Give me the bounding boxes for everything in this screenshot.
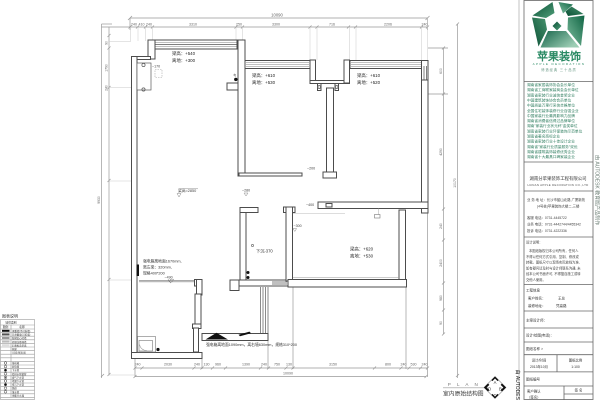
svg-text:不得以任何方式引用、复制、修改或: 不得以任何方式引用、复制、修改或 xyxy=(526,254,579,259)
svg-text:离左梁：320mm,: 离左梁：320mm, xyxy=(143,265,172,270)
svg-text:B: B xyxy=(499,386,502,391)
svg-text:落水管: 落水管 xyxy=(12,390,20,394)
svg-text:2030: 2030 xyxy=(164,363,172,367)
svg-text:湖南分苹果装饰工程有限公司: 湖南分苹果装饰工程有限公司 xyxy=(529,175,586,182)
svg-text:90: 90 xyxy=(439,321,443,325)
svg-text:中国家装行业最具影响力品牌: 中国家装行业最具影响力品牌 xyxy=(527,113,575,118)
svg-text:D: D xyxy=(488,386,491,391)
svg-text:设计/时间: 设计/时间 xyxy=(532,358,547,363)
svg-text:工程信息: 工程信息 xyxy=(526,288,540,293)
svg-text:10090: 10090 xyxy=(271,13,283,18)
svg-text:~490: ~490 xyxy=(165,276,173,280)
svg-text:梁高：+610: 梁高：+610 xyxy=(252,72,276,79)
svg-text:下水管: 下水管 xyxy=(12,368,20,372)
svg-text:设计/绘图(电话)：: 设计/绘图(电话)： xyxy=(526,333,554,338)
svg-text:凭高路: 凭高路 xyxy=(556,303,567,308)
svg-text:由 AUTODESK 教育版产品制作: 由 AUTODESK 教育版产品制作 xyxy=(594,155,600,225)
svg-text:530: 530 xyxy=(411,363,417,367)
svg-text:960: 960 xyxy=(215,363,221,367)
svg-text:离地：+530: 离地：+530 xyxy=(350,253,374,260)
svg-text:130: 130 xyxy=(286,363,292,367)
svg-text:410: 410 xyxy=(139,23,145,27)
svg-text:240: 240 xyxy=(131,23,137,27)
svg-text:湖南"家装行业状元杯"金奖单位: 湖南"家装行业状元杯"金奖单位 xyxy=(527,123,578,128)
svg-text:给排水预留管: 给排水预留管 xyxy=(12,372,27,376)
svg-text:2400: 2400 xyxy=(439,259,443,267)
svg-text:苹果装饰: 苹果装饰 xyxy=(537,49,581,63)
svg-text:梁高：+540: 梁高：+540 xyxy=(172,50,196,57)
svg-text:图纸名称 >: 图纸名称 > xyxy=(526,346,543,351)
svg-text:室内原始结构图: 室内原始结构图 xyxy=(443,390,484,398)
svg-text:HUNAN APPLE DECORATION CO.,LTD: HUNAN APPLE DECORATION CO.,LTD xyxy=(527,183,588,187)
svg-text:客户姓名：: 客户姓名： xyxy=(528,296,546,301)
svg-text:240: 240 xyxy=(401,363,407,367)
svg-text:强电箱离地面1670mm,: 强电箱离地面1670mm, xyxy=(143,259,182,264)
svg-text:装修地址：: 装修地址： xyxy=(528,303,546,308)
svg-text:湖南省工商联家装商会会长单位: 湖南省工商联家装商会会长单位 xyxy=(527,87,579,92)
svg-text:980: 980 xyxy=(439,295,443,301)
svg-text:~280: ~280 xyxy=(242,189,250,193)
svg-text:由 AUTODESK 教育版产品制作: 由 AUTODESK 教育版产品制作 xyxy=(514,370,521,400)
svg-text:离地：+300: 离地：+300 xyxy=(172,57,196,64)
svg-text:240: 240 xyxy=(261,363,267,367)
svg-text:弱电箱: 弱电箱 xyxy=(12,365,20,369)
svg-text:130: 130 xyxy=(204,363,210,367)
svg-text:中国建筑装饰协会会员单位: 中国建筑装饰协会会员单位 xyxy=(527,98,572,103)
svg-text:~170: ~170 xyxy=(152,65,160,69)
svg-text:3300: 3300 xyxy=(272,23,280,27)
svg-text:90: 90 xyxy=(105,41,109,45)
svg-text:石膏板造型墙: 石膏板造型墙 xyxy=(12,343,27,347)
svg-text:A: A xyxy=(494,380,497,385)
svg-text:经本公司书面许可, 不得擅自施工或转: 经本公司书面许可, 不得擅自施工或转 xyxy=(526,271,581,276)
svg-text:图例: 图例 xyxy=(3,325,9,329)
svg-text:原建: 原建 xyxy=(12,347,17,351)
svg-text:716: 716 xyxy=(329,23,335,27)
svg-text:1790: 1790 xyxy=(105,64,109,72)
svg-text:投诉 电话：0731-4222336: 投诉 电话：0731-4222336 xyxy=(527,228,567,233)
svg-text:全国住宅装饰装修行业百强企业: 全国住宅装饰装修行业百强企业 xyxy=(527,108,579,113)
svg-text:3310: 3310 xyxy=(189,23,197,27)
svg-text:湖南省著名商标企业: 湖南省著名商标企业 xyxy=(527,134,560,139)
svg-text:2206: 2206 xyxy=(384,23,392,27)
svg-text:湖南省家装行业诚信金奖企业: 湖南省家装行业诚信金奖企业 xyxy=(527,92,575,97)
svg-text:（签名）: （签名） xyxy=(527,395,541,400)
svg-text:~400: ~400 xyxy=(306,203,314,207)
svg-text:地漏下水管: 地漏下水管 xyxy=(12,379,25,383)
svg-text:2013年10月: 2013年10月 xyxy=(530,364,548,369)
svg-text:10170: 10170 xyxy=(453,178,457,188)
svg-text:离地：+520: 离地：+520 xyxy=(357,79,381,86)
svg-text:湖南省家装行业环保装饰示范单位: 湖南省家装行业环保装饰示范单位 xyxy=(527,128,583,133)
svg-text:地暖分水器: 地暖分水器 xyxy=(12,393,25,397)
svg-text:承重墙(不可拆墙): 承重墙(不可拆墙) xyxy=(12,329,31,333)
svg-text:~200: ~200 xyxy=(307,167,315,171)
svg-text:图纸编号: 图纸编号 xyxy=(526,377,540,382)
svg-text:电: 电 xyxy=(234,73,237,77)
svg-text:P L A N: P L A N xyxy=(448,382,481,387)
svg-text:APPLE DECORATION: APPLE DECORATION xyxy=(533,62,586,66)
svg-text:规格400*200: 规格400*200 xyxy=(143,271,165,276)
svg-text:王总: 王总 xyxy=(558,296,566,301)
svg-text:客服 电话：0731-4445722: 客服 电话：0731-4445722 xyxy=(527,215,567,220)
svg-text:煤气下水管: 煤气下水管 xyxy=(12,375,25,379)
svg-text:250: 250 xyxy=(236,23,242,27)
svg-text:1390: 1390 xyxy=(242,363,250,367)
svg-text:240: 240 xyxy=(105,85,109,91)
svg-text:中国质量万里行采信合格单位: 中国质量万里行采信合格单位 xyxy=(527,103,575,108)
svg-text:湖南省十大最具口碑家装企业: 湖南省十大最具口碑家装企业 xyxy=(527,154,575,159)
svg-text:设计说明：: 设计说明： xyxy=(526,240,542,245)
svg-text:本图纸版权归本公司所有，任何人: 本图纸版权归本公司所有，任何人 xyxy=(529,248,579,253)
svg-text:3150: 3150 xyxy=(329,363,337,367)
svg-text:墙体类别: 墙体类别 xyxy=(5,320,16,324)
svg-text:新砌实心砖墙: 新砌实心砖墙 xyxy=(12,336,27,340)
svg-text:240: 240 xyxy=(135,363,141,367)
svg-text:轻钢龙骨隔墙: 轻钢龙骨隔墙 xyxy=(12,340,27,344)
svg-text:梁高：+610: 梁高：+610 xyxy=(357,72,381,79)
svg-text:4290: 4290 xyxy=(439,148,443,156)
svg-text:10090: 10090 xyxy=(283,372,293,376)
svg-text:如有疑问请及时与设计师联系沟通, 未: 如有疑问请及时与设计师联系沟通, 未 xyxy=(526,265,581,270)
svg-text:240: 240 xyxy=(422,363,428,367)
svg-text:下沉-370: 下沉-370 xyxy=(256,248,273,255)
svg-text:转载。图纸尺寸以现场实际放线为准,: 转载。图纸尺寸以现场实际放线为准, xyxy=(526,260,580,265)
svg-text:750: 750 xyxy=(274,363,280,367)
svg-text:业务 电话：0731-4442744/4455342: 业务 电话：0731-4442744/4455342 xyxy=(527,222,581,227)
svg-text:非承重墙(可拆墙): 非承重墙(可拆墙) xyxy=(12,333,31,337)
svg-text:交他人使用。: 交他人使用。 xyxy=(526,277,546,282)
svg-text:240: 240 xyxy=(194,363,200,367)
svg-text:湖南省家装行业十佳设计企业: 湖南省家装行业十佳设计企业 xyxy=(527,139,575,144)
svg-text:强电箱: 强电箱 xyxy=(12,361,20,365)
svg-text:客户确认: 客户确认 xyxy=(527,389,541,394)
svg-text:签 名: 签 名 xyxy=(575,388,583,393)
svg-text:缔造经典 三十品质: 缔造经典 三十品质 xyxy=(541,67,576,72)
svg-text:湖南省消费者信得过品牌单位: 湖南省消费者信得过品牌单位 xyxy=(527,118,575,123)
svg-text:排污下水管: 排污下水管 xyxy=(12,383,25,387)
svg-text:1:100: 1:100 xyxy=(571,365,580,369)
svg-text:图纸比例: 图纸比例 xyxy=(569,358,583,363)
svg-text:主案设计师：: 主案设计师： xyxy=(526,318,547,323)
svg-text:240: 240 xyxy=(146,23,152,27)
svg-text:图表说明: 图表说明 xyxy=(2,313,18,319)
svg-text:600: 600 xyxy=(439,68,443,74)
svg-text:烟道: 烟道 xyxy=(12,386,17,390)
svg-text:强电箱离地面1090mm，离右墙630mm，规格310*20: 强电箱离地面1090mm，离右墙630mm，规格310*200 xyxy=(206,342,297,347)
svg-text:(可拆/砌页页): (可拆/砌页页) xyxy=(12,351,26,355)
svg-text:9930: 9930 xyxy=(97,196,101,204)
svg-text:C: C xyxy=(493,393,496,398)
svg-text:湖南省"家装行业质量服务"双优: 湖南省"家装行业质量服务"双优 xyxy=(527,144,578,149)
svg-text:240: 240 xyxy=(422,23,428,27)
svg-text:离地：+530: 离地：+530 xyxy=(252,79,276,86)
svg-text:业 务 地 址：长沙市韶山北路 广厦新苑: 业 务 地 址：长沙市韶山北路 广厦新苑 xyxy=(527,197,586,202)
svg-text:800: 800 xyxy=(385,363,391,367)
svg-text:梁高：+620: 梁高：+620 xyxy=(350,246,374,253)
svg-text:湖南省家居装饰协会会长单位: 湖南省家居装饰协会会长单位 xyxy=(527,82,575,87)
svg-text:~300: ~300 xyxy=(294,224,302,228)
svg-text:240: 240 xyxy=(439,223,443,229)
svg-text:湖南省建筑装饰装修优秀企业: 湖南省建筑装饰装修优秀企业 xyxy=(527,149,575,154)
svg-text:(4号栋)苹果装饰大楼二,三楼: (4号栋)苹果装饰大楼二,三楼 xyxy=(537,204,580,209)
svg-text:名称: 名称 xyxy=(19,325,25,329)
